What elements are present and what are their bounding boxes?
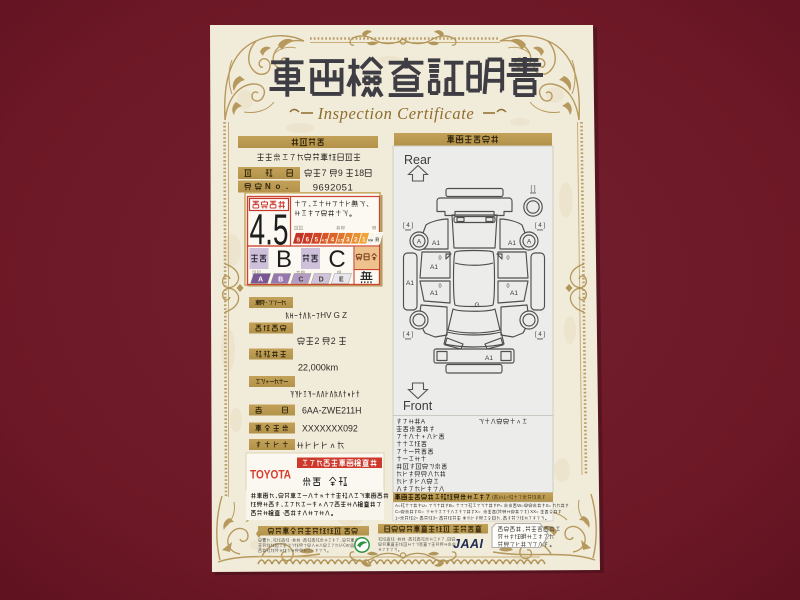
svg-text:R: R bbox=[375, 237, 379, 243]
svg-text:S: S bbox=[296, 237, 300, 243]
svg-text:3: 3 bbox=[346, 236, 350, 243]
svg-text:6AA-ZWE211H: 6AA-ZWE211H bbox=[302, 406, 361, 416]
svg-text:mm: mm bbox=[405, 228, 411, 232]
svg-text:)A1=: )A1= bbox=[498, 495, 508, 501]
svg-text:0: 0 bbox=[506, 256, 509, 262]
svg-text:A1: A1 bbox=[406, 280, 414, 287]
svg-text:W=: W= bbox=[517, 503, 524, 508]
svg-text:) XX=: ) XX= bbox=[528, 509, 540, 514]
svg-text:U=: U= bbox=[422, 503, 428, 508]
svg-text:N: N bbox=[265, 182, 271, 191]
svg-text:HV G Z: HV G Z bbox=[320, 311, 347, 320]
svg-text:6: 6 bbox=[306, 236, 310, 243]
svg-text:3=: 3= bbox=[433, 516, 438, 521]
svg-text:.: . bbox=[286, 182, 288, 191]
svg-text:5: 5 bbox=[315, 236, 319, 243]
svg-text:A: A bbox=[421, 419, 426, 426]
svg-text:Front: Front bbox=[403, 399, 433, 413]
svg-text:9692051: 9692051 bbox=[313, 183, 353, 194]
svg-text:22,000km: 22,000km bbox=[298, 363, 339, 373]
svg-text:C: C bbox=[298, 277, 303, 284]
svg-text:mm: mm bbox=[537, 228, 543, 232]
svg-text:C=: C= bbox=[395, 509, 401, 514]
svg-text:1: 1 bbox=[362, 236, 366, 243]
svg-text:D: D bbox=[319, 277, 324, 284]
svg-text:C: C bbox=[328, 246, 345, 273]
svg-text:7: 7 bbox=[322, 168, 327, 178]
svg-text:B: B bbox=[276, 246, 292, 273]
svg-text:A=: A= bbox=[395, 503, 401, 508]
svg-text:U-Car: U-Car bbox=[339, 543, 351, 548]
svg-text:S=: S= bbox=[546, 503, 552, 508]
svg-text:X=: X= bbox=[475, 509, 481, 514]
svg-text:A1: A1 bbox=[430, 290, 438, 297]
svg-text:A: A bbox=[258, 277, 263, 284]
svg-text:A1: A1 bbox=[432, 240, 440, 247]
svg-text:o: o bbox=[276, 182, 281, 191]
svg-text:E: E bbox=[339, 277, 344, 284]
svg-text:2: 2 bbox=[354, 236, 358, 243]
svg-text:4: 4 bbox=[331, 236, 335, 243]
svg-text:B: B bbox=[278, 277, 283, 284]
svg-text:0: 0 bbox=[506, 284, 509, 290]
svg-text:2: 2 bbox=[315, 336, 320, 346]
svg-text:A1: A1 bbox=[510, 290, 518, 297]
svg-text:JAAI: JAAI bbox=[453, 537, 484, 551]
svg-text:0: 0 bbox=[438, 284, 441, 290]
svg-text:mm: mm bbox=[405, 337, 411, 341]
svg-text:TOYOTA: TOYOTA bbox=[250, 468, 291, 482]
svg-text:18: 18 bbox=[354, 168, 364, 178]
svg-text:2: 2 bbox=[331, 336, 336, 346]
svg-text:A: A bbox=[527, 239, 532, 246]
svg-text:XXXXXXX092: XXXXXXX092 bbox=[302, 424, 358, 434]
svg-text:0: 0 bbox=[438, 256, 441, 262]
svg-text:mm: mm bbox=[537, 337, 543, 341]
svg-text:2=: 2= bbox=[413, 516, 418, 521]
svg-text:9: 9 bbox=[338, 168, 343, 178]
svg-text:B=: B= bbox=[449, 503, 455, 508]
svg-text:Rear: Rear bbox=[404, 153, 431, 167]
svg-text:A1: A1 bbox=[508, 240, 516, 247]
svg-text:G=: G= bbox=[418, 509, 424, 514]
svg-text:A: A bbox=[417, 239, 422, 246]
svg-text:Inspection Certificate: Inspection Certificate bbox=[317, 104, 475, 123]
svg-text:mm: mm bbox=[530, 191, 536, 195]
svg-text:A1: A1 bbox=[485, 355, 493, 362]
svg-text:1=: 1= bbox=[395, 516, 400, 521]
svg-text:P=: P= bbox=[497, 503, 503, 508]
svg-text:G: G bbox=[474, 302, 479, 309]
svg-text:A1: A1 bbox=[430, 264, 438, 271]
